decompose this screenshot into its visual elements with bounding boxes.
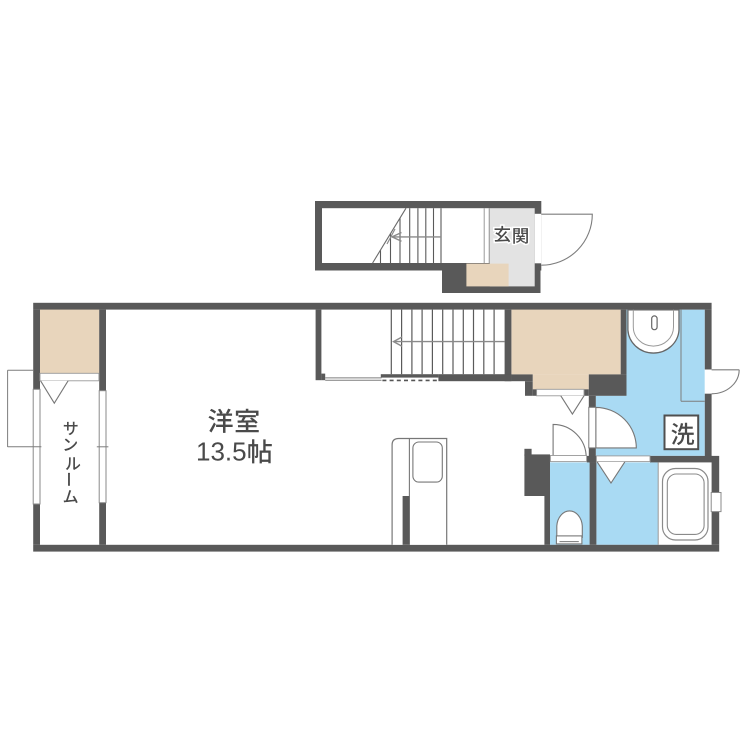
svg-text:13.5: 13.5 [196, 436, 247, 466]
